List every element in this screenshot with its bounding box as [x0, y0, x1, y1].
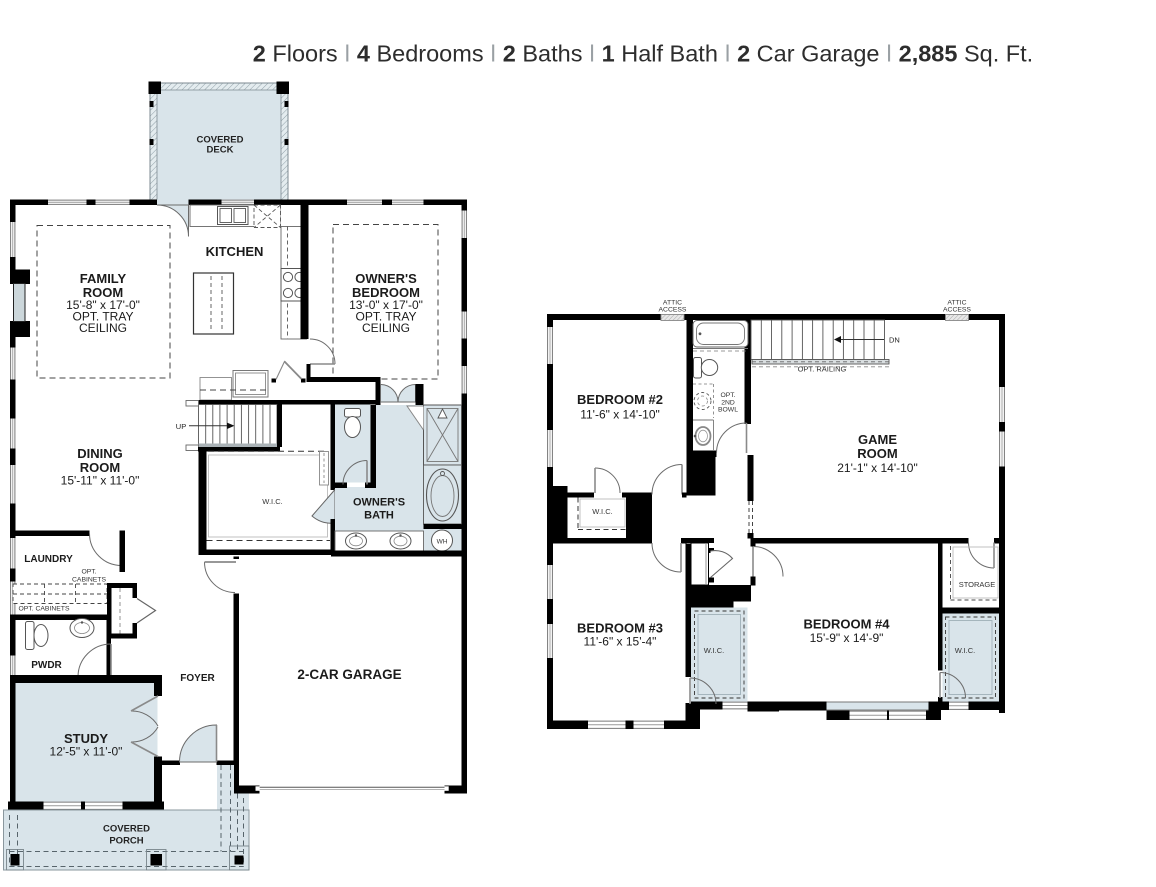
- svg-text:PWDR: PWDR: [31, 660, 62, 671]
- svg-text:PORCH: PORCH: [109, 836, 143, 847]
- svg-text:BEDROOM #2: BEDROOM #2: [577, 392, 663, 407]
- svg-text:15'-11" x 11'-0": 15'-11" x 11'-0": [61, 474, 140, 488]
- svg-text:KITCHEN: KITCHEN: [206, 244, 264, 259]
- svg-text:W.I.C.: W.I.C.: [592, 507, 612, 516]
- svg-text:CEILING: CEILING: [362, 321, 410, 335]
- svg-text:FAMILY: FAMILY: [80, 271, 127, 286]
- svg-text:CABINETS: CABINETS: [72, 577, 106, 584]
- svg-text:WH: WH: [437, 539, 448, 546]
- svg-text:DECK: DECK: [207, 145, 234, 156]
- svg-text:GAME: GAME: [858, 432, 897, 447]
- svg-text:BEDROOM #4: BEDROOM #4: [804, 617, 891, 632]
- svg-text:OWNER'S: OWNER'S: [353, 497, 405, 509]
- svg-text:BATH: BATH: [364, 510, 394, 522]
- svg-text:STORAGE: STORAGE: [959, 580, 996, 589]
- svg-text:CEILING: CEILING: [79, 321, 127, 335]
- svg-text:FOYER: FOYER: [180, 673, 215, 684]
- svg-text:OPT. CABINETS: OPT. CABINETS: [19, 606, 70, 613]
- svg-text:11'-6" x 15'-4": 11'-6" x 15'-4": [584, 635, 657, 649]
- svg-text:ATTIC: ATTIC: [947, 300, 966, 307]
- svg-text:BEDROOM #3: BEDROOM #3: [577, 621, 663, 636]
- svg-text:21'-1" x 14'-10": 21'-1" x 14'-10": [837, 461, 917, 475]
- svg-text:ACCESS: ACCESS: [659, 307, 687, 314]
- svg-text:11'-6" x 14'-10": 11'-6" x 14'-10": [580, 408, 660, 422]
- svg-text:DN: DN: [889, 336, 900, 345]
- svg-text:UP: UP: [176, 422, 186, 431]
- svg-text:W.I.C.: W.I.C.: [262, 497, 282, 506]
- svg-text:OWNER'S: OWNER'S: [355, 271, 417, 286]
- svg-text:ATTIC: ATTIC: [663, 300, 682, 307]
- svg-text:ROOM: ROOM: [857, 446, 897, 461]
- svg-text:COVERED: COVERED: [103, 824, 150, 835]
- svg-text:2ND: 2ND: [721, 400, 735, 407]
- svg-text:BOWL: BOWL: [718, 407, 738, 414]
- svg-text:OPT.: OPT.: [720, 392, 735, 399]
- svg-text:W.I.C.: W.I.C.: [704, 646, 724, 655]
- svg-text:DINING: DINING: [77, 446, 123, 461]
- svg-text:OPT. RAILING: OPT. RAILING: [798, 365, 847, 374]
- svg-text:W.I.C.: W.I.C.: [955, 646, 975, 655]
- svg-text:OPT.: OPT.: [81, 569, 96, 576]
- svg-text:LAUNDRY: LAUNDRY: [24, 554, 73, 565]
- svg-text:ACCESS: ACCESS: [943, 307, 971, 314]
- svg-text:2 Floors ǀ 4 Bedrooms ǀ 2 Bath: 2 Floors ǀ 4 Bedrooms ǀ 2 Baths ǀ 1 Half…: [253, 41, 1033, 67]
- svg-text:12'-5" x 11'-0": 12'-5" x 11'-0": [50, 745, 123, 759]
- svg-text:15'-9" x 14'-9": 15'-9" x 14'-9": [810, 631, 884, 645]
- svg-text:2-CAR GARAGE: 2-CAR GARAGE: [297, 667, 401, 682]
